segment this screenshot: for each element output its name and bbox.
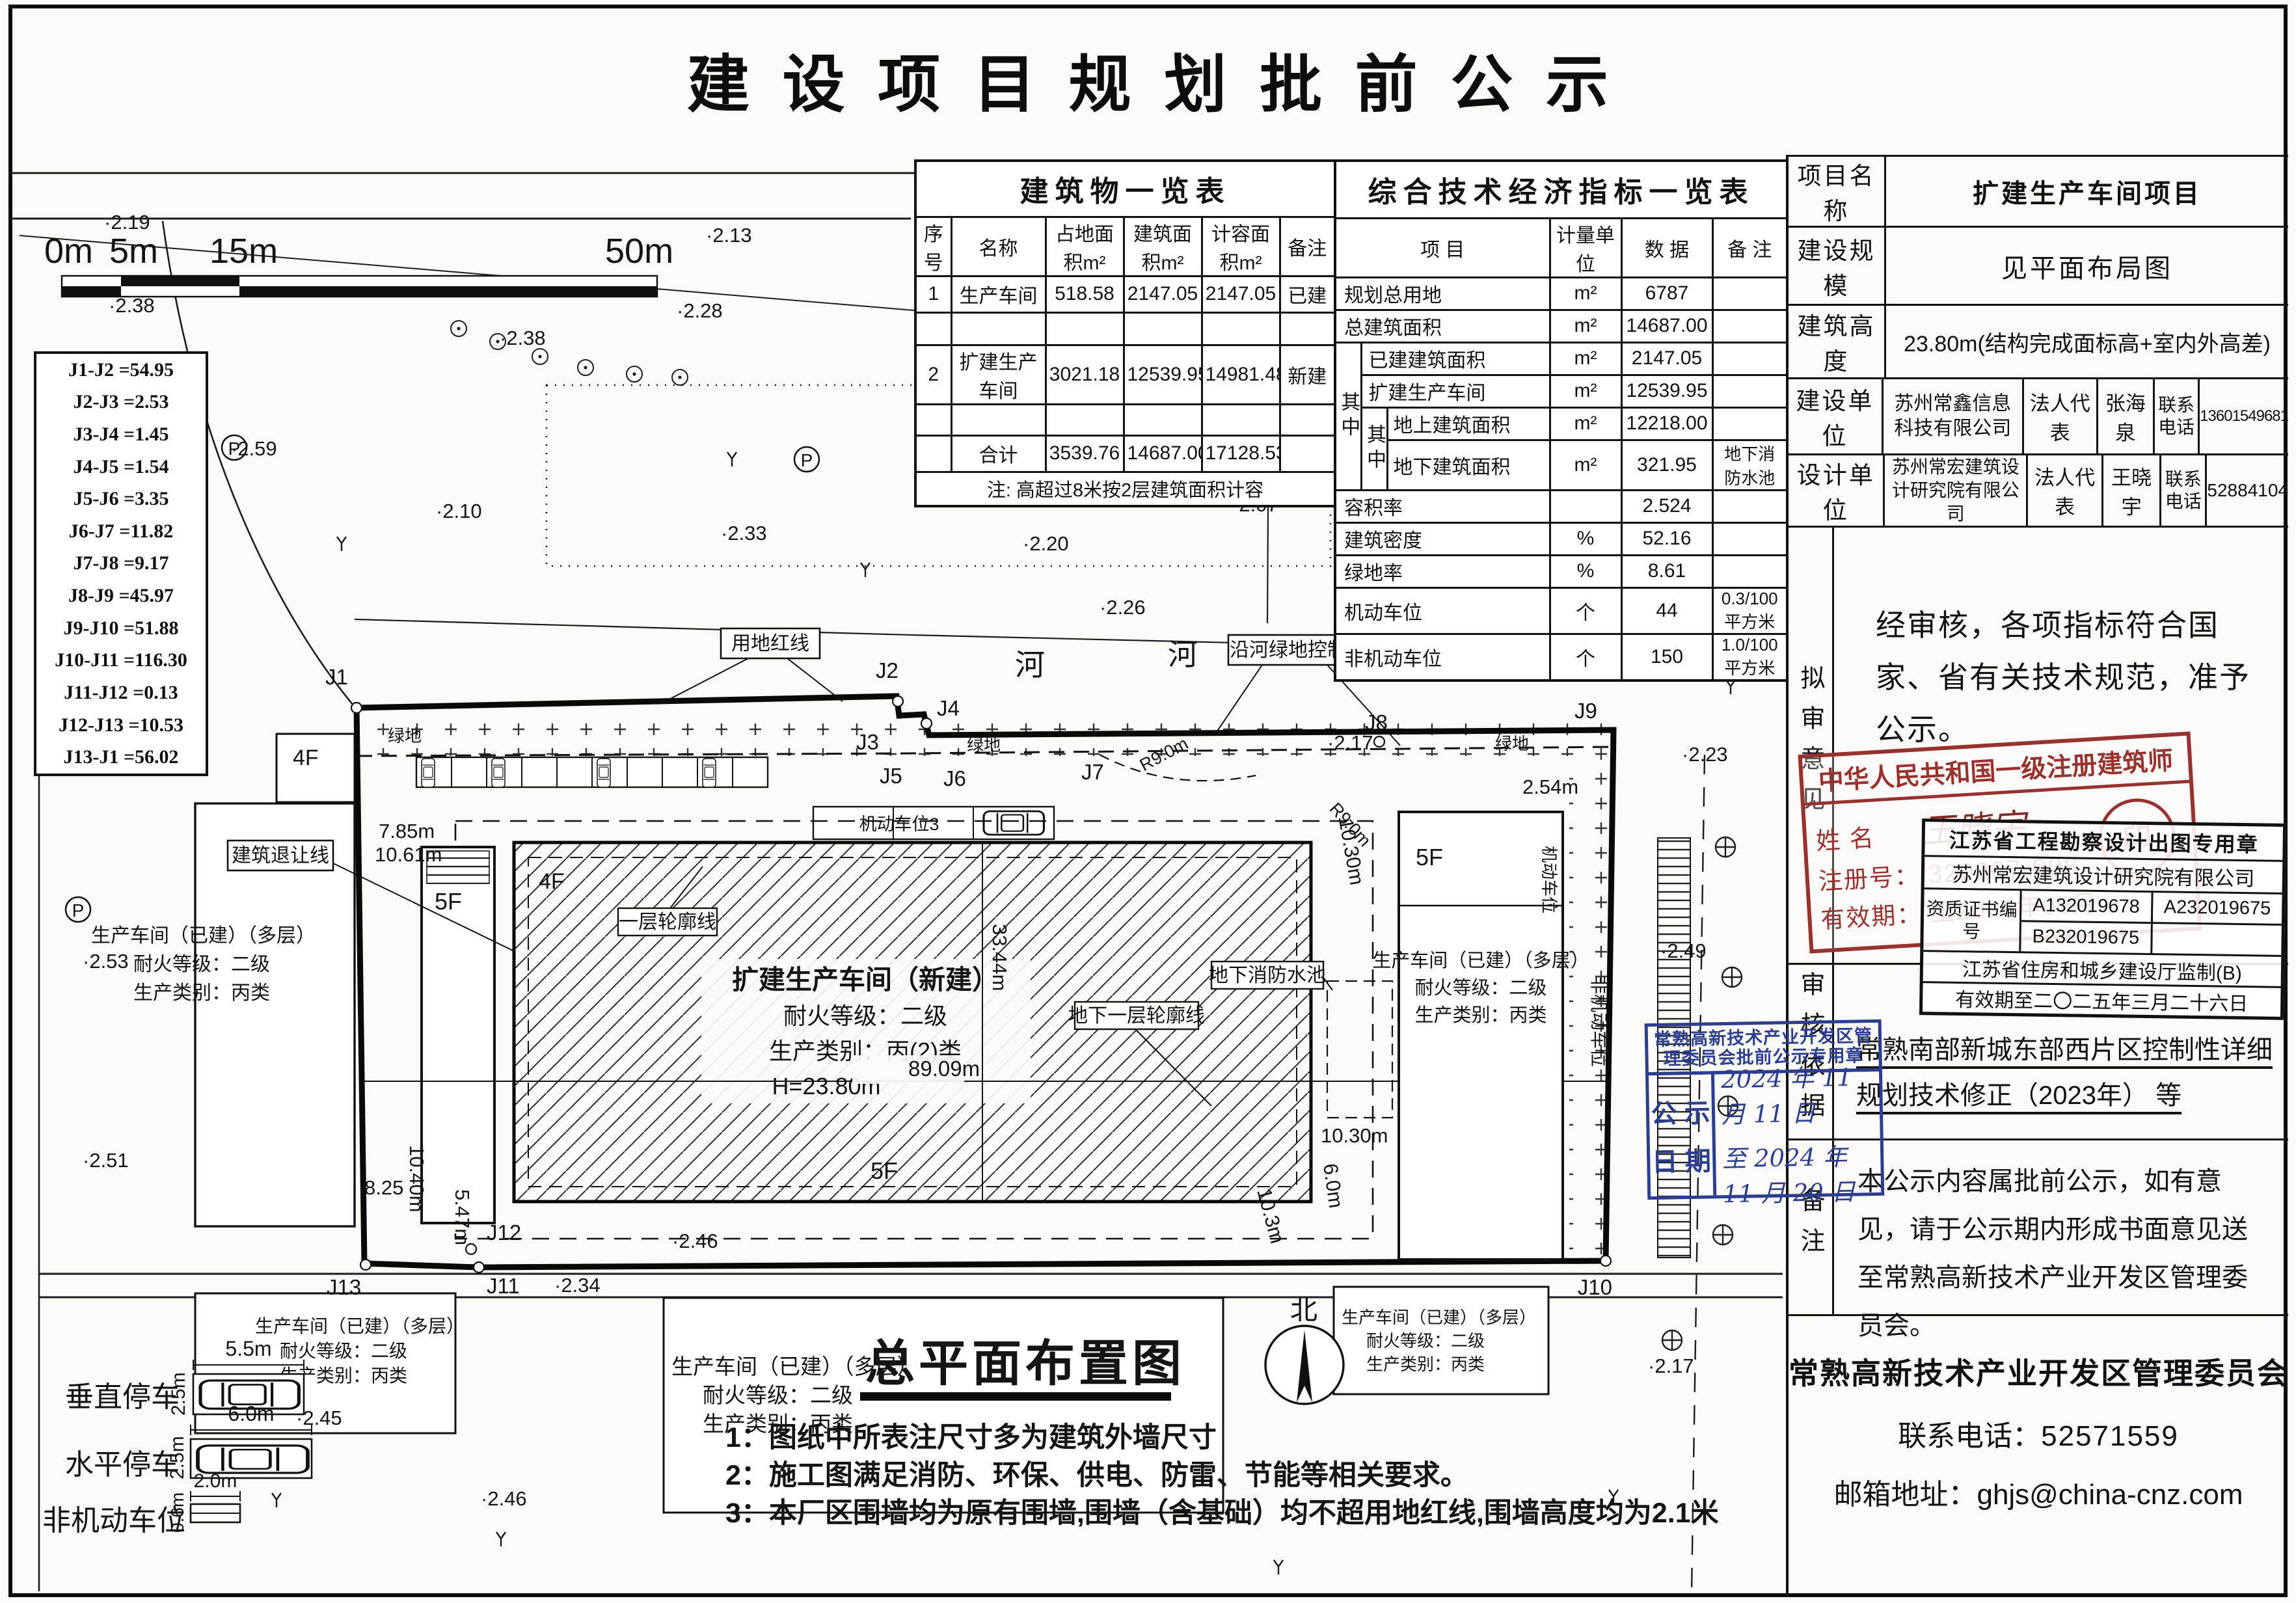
north-label: 北 (1290, 1295, 1317, 1325)
design-stamp-validity: 有效期至二〇二五年三月二十六日 (1923, 983, 2281, 1017)
svg-text:·2.51: ·2.51 (83, 1149, 129, 1172)
col-header: 名称 (951, 217, 1046, 276)
subgroup-label: 其中 (1361, 407, 1387, 490)
svg-text:6.0m: 6.0m (1319, 1162, 1347, 1209)
svg-text:J3: J3 (856, 730, 879, 754)
scale-5: 5m (109, 232, 158, 271)
svg-text:J7: J7 (1081, 760, 1104, 784)
svg-text:·2.19: ·2.19 (104, 211, 150, 234)
svg-text:J1: J1 (325, 665, 348, 689)
svg-text:10.30m: 10.30m (1321, 1124, 1388, 1147)
green-label: 绿地 (1495, 734, 1529, 753)
svg-text:J13: J13 (327, 1275, 361, 1299)
table-row: 1生产车间 518.582147.05 2147.05已建 (915, 276, 1335, 312)
green-label: 绿地 (388, 726, 422, 746)
cert-3: B232019675 (2021, 922, 2152, 953)
floor1-label: 一层轮廓线 (619, 911, 716, 933)
footer-block: 常熟高新技术产业开发区管理委员会 联系电话：52571559 邮箱地址：ghjs… (1789, 1316, 2288, 1597)
boundary-row: J6-J7 =11.82 (36, 520, 206, 543)
footer-org: 常熟高新技术产业开发区管理委员会 (1789, 1350, 2288, 1393)
firepool-label: 地下消防水池 (1209, 965, 1326, 986)
building-table: 建筑物一览表 序号 名称 占地面积m² 建筑面积m² 计容面积m² 备注 1生产… (914, 159, 1336, 507)
height-row: 建筑高度 23.80m(结构完成面标高+室内外高差) (1789, 306, 2288, 379)
designer-phone-label: 联系电话 (2161, 455, 2207, 526)
announcement-blue-stamp: 常熟高新技术产业开发区管理委员会批前公示专用章 公 示 日 期 2024 年 1… (1645, 1019, 1885, 1203)
main-building-name: 扩建生产车间（新建） (732, 965, 999, 995)
designer-label: 设计单位 (1789, 455, 1885, 526)
table-row: 其中地上建筑面积m²12218.00 (1335, 407, 1787, 440)
svg-text:·2.23: ·2.23 (1682, 743, 1728, 766)
table-row: 规划总用地m²6787 (1335, 277, 1787, 310)
svg-text:J5: J5 (880, 764, 902, 788)
boundary-row: J2-J3 =2.53 (36, 391, 206, 413)
table-row-spacer (915, 404, 1335, 435)
svg-text:J2: J2 (876, 658, 898, 682)
scale-0: 0m (44, 232, 93, 271)
river-label: 河 (1015, 648, 1045, 682)
cert-1: A132019678 (2021, 891, 2153, 922)
turn-radius-arc (1100, 755, 1256, 781)
east-building-name: 生产车间（已建）（多层） (1372, 950, 1589, 971)
svg-text:10.61m: 10.61m (375, 843, 442, 866)
svg-text:J10: J10 (1578, 1275, 1612, 1299)
west-building-fire: 耐火等级：二级 (133, 954, 270, 975)
col-header: 计容面积m² (1202, 217, 1280, 276)
green-label: 绿地 (967, 735, 1001, 755)
svg-text:·2.13: ·2.13 (706, 224, 752, 247)
builder-rep-value: 张海泉 (2098, 379, 2155, 453)
svg-text:5.47m: 5.47m (451, 1189, 474, 1245)
basement-label: 地下一层轮廓线 (1068, 1005, 1205, 1027)
plan-title: 总平面布置图 (865, 1336, 1185, 1392)
legend-horizontal-label: 水平停车 (65, 1449, 180, 1481)
legend-n-width: 2.0m (194, 1470, 237, 1492)
builder-phone-label: 联系电话 (2155, 379, 2200, 453)
svg-text:P: P (801, 450, 813, 470)
scale-15: 15m (209, 232, 278, 271)
svg-text:·2.49: ·2.49 (1660, 939, 1707, 962)
plan-note-2: 2：施工图满足消防、环保、供电、防雷、节能等相关要求。 (725, 1460, 1468, 1491)
publicity-date-to: 至 2024 年 11 月 20 日 (1722, 1137, 1882, 1209)
publicity-date-from: 2024 年 11 月 11 日 (1721, 1057, 1880, 1130)
boundary-row: J10-J11 =116.30 (36, 649, 206, 671)
designer-rep-label: 法人代表 (2028, 455, 2103, 526)
svg-text:·2.46: ·2.46 (481, 1487, 527, 1510)
plan-note-3: 3：本厂区围墙均为原有围墙,围墙（含基础）均不超用地红线,围墙高度均为2.1米 (725, 1498, 1719, 1529)
main-building-fire: 耐火等级：二级 (783, 1003, 947, 1029)
redline-label: 用地红线 (731, 633, 809, 654)
legend-h-width: 6.0m (228, 1402, 274, 1425)
col-header: 计量单位 (1550, 218, 1621, 277)
parking-row-north (416, 757, 768, 787)
legend-h-depth: 2.5m (167, 1436, 188, 1479)
south-left-fire: 耐火等级：二级 (280, 1341, 407, 1361)
scale-value: 见平面布局图 (1886, 228, 2288, 304)
project-name-row: 项目名称 扩建生产车间项目 (1789, 157, 2288, 228)
col-header: 项 目 (1335, 218, 1550, 277)
floor-label-5f: 5F (435, 888, 462, 915)
boundary-row: J5-J6 =3.35 (36, 488, 206, 510)
svg-text:P: P (72, 900, 85, 921)
legend-v-width: 5.5m (225, 1337, 271, 1360)
blue-stamp-dates: 公 示 日 期 2024 年 11 月 11 日 至 2024 年 11 月 2… (1645, 1068, 1884, 1200)
table-row: 扩建生产车间m²12539.95 (1335, 375, 1787, 407)
builder-phone-value: 13601549681 (2200, 379, 2288, 453)
boundary-row: J9-J10 =51.88 (36, 617, 206, 640)
boundary-row: J13-J1 =56.02 (36, 746, 206, 768)
col-header: 建筑面积m² (1124, 217, 1202, 276)
svg-text:33.44m: 33.44m (988, 924, 1011, 991)
designer-row: 设计单位 苏州常宏建筑设计研究院有限公司 法人代表 王晓宇 联系电话 52884… (1789, 455, 2288, 528)
legend-nonmoto-label: 非机动车位 (42, 1505, 185, 1537)
table-row-spacer (915, 312, 1335, 345)
svg-text:P: P (228, 438, 241, 459)
plan-note-1: 1：图纸中所表注尺寸多为建筑外墙尺寸 (725, 1422, 1217, 1453)
boundary-row: J1-J2 =54.95 (36, 359, 206, 381)
east-building-class: 生产类别：丙类 (1414, 1004, 1546, 1026)
boundary-row: J3-J4 =1.45 (36, 424, 206, 446)
architect-reg-label: 注册号： (1818, 862, 1921, 895)
project-name-label: 项目名称 (1789, 157, 1886, 226)
footer-phone: 52571559 (2041, 1420, 2179, 1452)
svg-text:10.40m: 10.40m (405, 1145, 428, 1212)
legend-n-depth: 0.6m (167, 1492, 187, 1533)
col-header: 数 据 (1621, 218, 1712, 277)
table-row-total: 合计 3539.7614687.00 17128.53 (915, 435, 1335, 472)
remark-text: 本公示内容属批前公示，如有意见，请于公示期内形成书面意见送至常熟高新技术产业开发… (1834, 1140, 2288, 1314)
builder-row: 建设单位 苏州常鑫信息科技有限公司 法人代表 张海泉 联系电话 13601549… (1789, 379, 2288, 455)
cert-label: 资质证书编 号 (1923, 889, 2021, 951)
boundary-row: J4-J5 =1.54 (36, 456, 206, 478)
east-building-fire: 耐火等级：二级 (1414, 977, 1546, 999)
west-building-class: 生产类别：丙类 (133, 982, 270, 1004)
svg-text:·2.53: ·2.53 (83, 950, 129, 973)
svg-text:·2.33: ·2.33 (721, 522, 767, 545)
col-header: 占地面积m² (1046, 217, 1124, 276)
col-header: 序号 (915, 217, 951, 276)
svg-text:2.54m: 2.54m (1522, 775, 1578, 798)
svg-text:·2.28: ·2.28 (677, 299, 723, 322)
col-header: 备注 (1280, 217, 1335, 276)
north-compass-icon: 北 (1265, 1295, 1344, 1404)
svg-text:J11: J11 (487, 1274, 520, 1298)
cert-2: A232019675 (2152, 893, 2282, 924)
table-row: 容积率2.524 (1335, 490, 1787, 522)
group-label: 其中 (1335, 342, 1361, 490)
scale-label: 建设规模 (1789, 228, 1886, 304)
svg-text:J4: J4 (937, 696, 960, 720)
height-value: 23.80m(结构完成面标高+室内外高差) (1886, 306, 2288, 377)
svg-text:J9: J9 (1574, 699, 1597, 723)
table-row: 绿地率%8.61 (1335, 555, 1787, 587)
table-row: 总建筑面积m²14687.00 (1335, 310, 1787, 342)
legend-v-depth: 2.5m (168, 1372, 189, 1416)
river-label: 河 (1168, 638, 1198, 671)
builder-value: 苏州常鑫信息科技有限公司 (1884, 379, 2024, 453)
table-row: 2扩建生产车间 3021.1812539.95 14981.48新建 (915, 345, 1335, 404)
boundary-row: J7-J8 =9.17 (36, 552, 206, 574)
legend-vertical-label: 垂直停车 (65, 1381, 180, 1413)
south-center-fire: 耐火等级：二级 (703, 1383, 853, 1407)
svg-text:J12: J12 (487, 1220, 521, 1245)
indicator-table: 综合技术经济指标一览表 项 目 计量单位 数 据 备 注 规划总用地m²6787… (1334, 159, 1789, 682)
architect-valid-label: 有效期： (1820, 900, 1923, 933)
floor-label-4f: 4F (293, 746, 319, 770)
nonmoto-strip-label: 非机动车位 (1589, 976, 1609, 1067)
svg-text:89.09m: 89.09m (908, 1057, 980, 1081)
svg-text:·2.10: ·2.10 (436, 500, 482, 522)
setback-label: 建筑退让线 (232, 845, 329, 867)
design-institute-stamp: 江苏省工程勘察设计出图专用章 苏州常宏建筑设计研究院有限公司 资质证书编 号 A… (1919, 818, 2286, 1020)
project-name-value: 扩建生产车间项目 (1886, 157, 2288, 226)
footer-email: ghjs@china-cnz.com (1977, 1479, 2243, 1511)
designer-rep-value: 王晓宇 (2103, 455, 2161, 526)
svg-text:·2.20: ·2.20 (1023, 532, 1069, 555)
svg-text:·2.46: ·2.46 (672, 1230, 718, 1252)
table-row: 建筑密度%52.16 (1335, 522, 1787, 555)
boundary-row: J8-J9 =45.97 (36, 585, 206, 607)
floor-label-5f: 5F (871, 1157, 898, 1184)
svg-text:J6: J6 (943, 766, 966, 790)
south-right-class: 生产类别：丙类 (1366, 1354, 1485, 1374)
parking-row-moto3: 机动车位3 (813, 807, 1054, 839)
builder-rep-label: 法人代表 (2024, 379, 2098, 453)
table-row: 地下建筑面积m²321.95地下消防水池 (1335, 440, 1787, 490)
fire-pool-outline (1327, 981, 1392, 1118)
boundary-row: J11-J12 =0.13 (36, 682, 206, 704)
svg-text:·2.17: ·2.17 (1648, 1354, 1694, 1377)
builder-label: 建设单位 (1789, 379, 1884, 453)
scale-50: 50m (605, 232, 673, 271)
table-row: 机动车位个440.3/100平方米 (1335, 587, 1787, 634)
indicator-table-title: 综合技术经济指标一览表 (1335, 161, 1787, 218)
tree-icon (451, 321, 688, 385)
south-right-name: 生产车间（已建）（多层） (1342, 1308, 1536, 1327)
footer-email-label: 邮箱地址： (1833, 1479, 1977, 1511)
south-right-fire: 耐火等级：二级 (1366, 1331, 1485, 1351)
height-label: 建筑高度 (1789, 306, 1886, 377)
col-header: 备 注 (1712, 218, 1787, 277)
publicity-label-2: 日 期 (1651, 1140, 1711, 1179)
building-table-title: 建筑物一览表 (915, 161, 1335, 217)
drawing-sheet: 机动车位3 4F 5F 4F 5F 扩建生产车间（新建） 耐火等级：二级 生产类… (0, 0, 2296, 1603)
footer-phone-label: 联系电话： (1898, 1420, 2041, 1452)
svg-text:·2.17: ·2.17 (1327, 731, 1373, 754)
table-row: 非机动车位个1501.0/100平方米 (1335, 634, 1787, 680)
west-building-name: 生产车间（已建）（多层） (91, 925, 316, 947)
design-stamp-title: 江苏省工程勘察设计出图专用章 (1925, 822, 2283, 862)
svg-text:·2.34: ·2.34 (554, 1274, 601, 1297)
design-stamp-company: 苏州常宏建筑设计研究院有限公司 (1925, 857, 2283, 895)
design-stamp-authority: 江苏省住房和城乡建设厅监制(B) (1923, 952, 2282, 988)
architect-name-label: 姓 名 (1815, 824, 1876, 854)
svg-text:·2.38: ·2.38 (500, 327, 546, 349)
svg-text:7.85m: 7.85m (379, 820, 435, 842)
designer-value: 苏州常宏建筑设计研究院有限公司 (1885, 455, 2028, 526)
building-table-note: 注: 高超过8米按2层建筑面积计容 (915, 472, 1335, 506)
table-row: 其中已建建筑面积m²2147.05 (1335, 342, 1787, 375)
boundary-row: J12-J13 =10.53 (36, 714, 206, 736)
designer-phone-value: 52884104 (2207, 455, 2288, 526)
parking-row-label: 机动车位3 (859, 815, 939, 834)
svg-text:8.25: 8.25 (364, 1176, 403, 1199)
scale-row: 建设规模 见平面布局图 (1789, 228, 2288, 306)
south-left-name: 生产车间（已建）（多层） (255, 1316, 465, 1336)
moto-strip-label: 机动车位 (1539, 846, 1559, 913)
floor-label-4f: 4F (539, 869, 565, 894)
publicity-label-1: 公 示 (1651, 1092, 1710, 1131)
design-stamp-certs: 资质证书编 号 A132019678 A232019675 B232019675 (1923, 889, 2282, 957)
boundary-length-table: J1-J2 =54.95 J2-J3 =2.53 J3-J4 =1.45 J4-… (34, 351, 208, 776)
svg-text:·2.26: ·2.26 (1100, 596, 1146, 619)
page-title: 建 设 项 目 规 划 批 前 公 示 (651, 34, 1653, 124)
floor-label-5f: 5F (1416, 844, 1443, 870)
